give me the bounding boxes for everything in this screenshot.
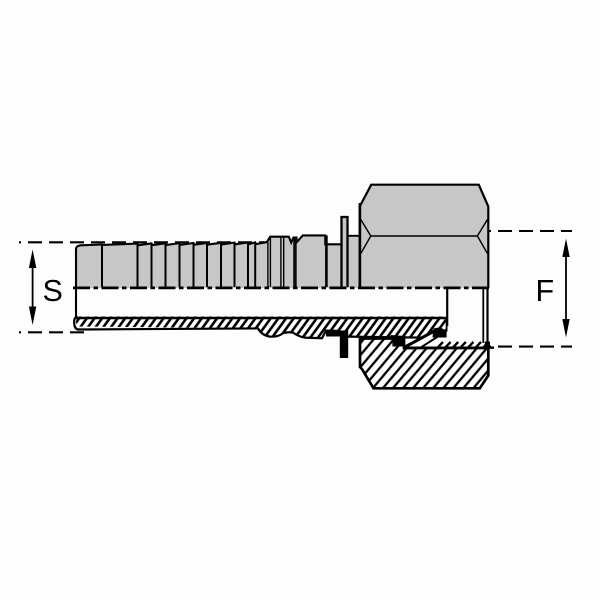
- svg-text:F: F: [536, 274, 555, 308]
- svg-text:S: S: [43, 274, 63, 308]
